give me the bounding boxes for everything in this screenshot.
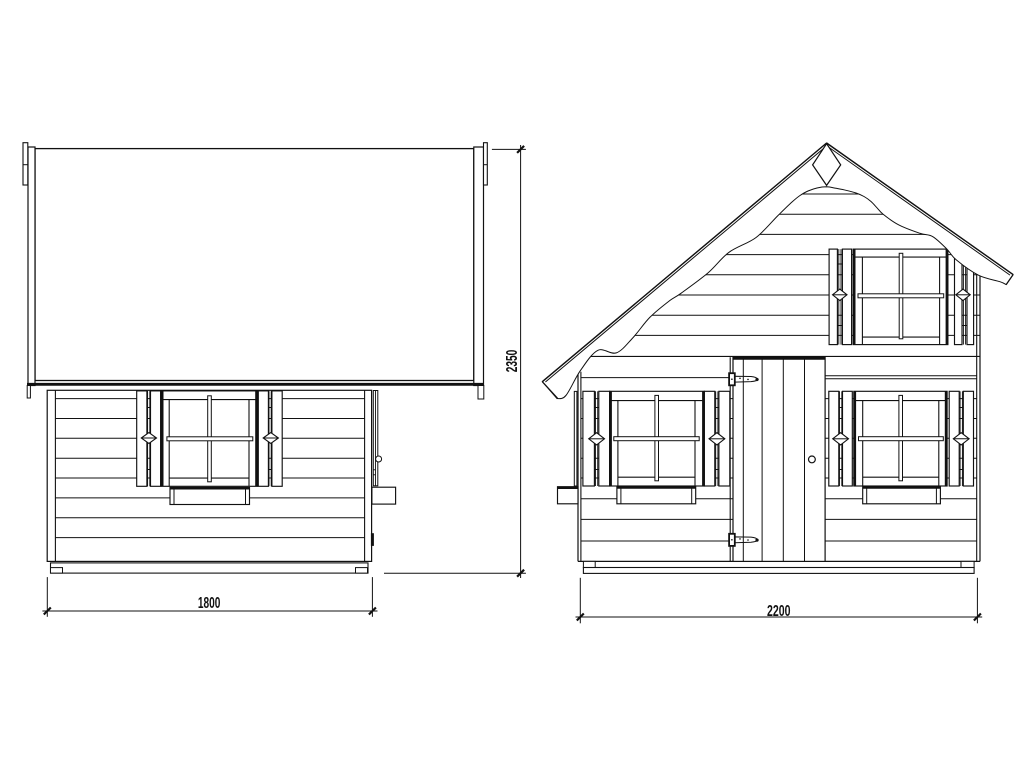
svg-text:2200: 2200 (767, 603, 791, 620)
svg-text:2350: 2350 (504, 350, 521, 373)
svg-text:1800: 1800 (198, 595, 221, 612)
